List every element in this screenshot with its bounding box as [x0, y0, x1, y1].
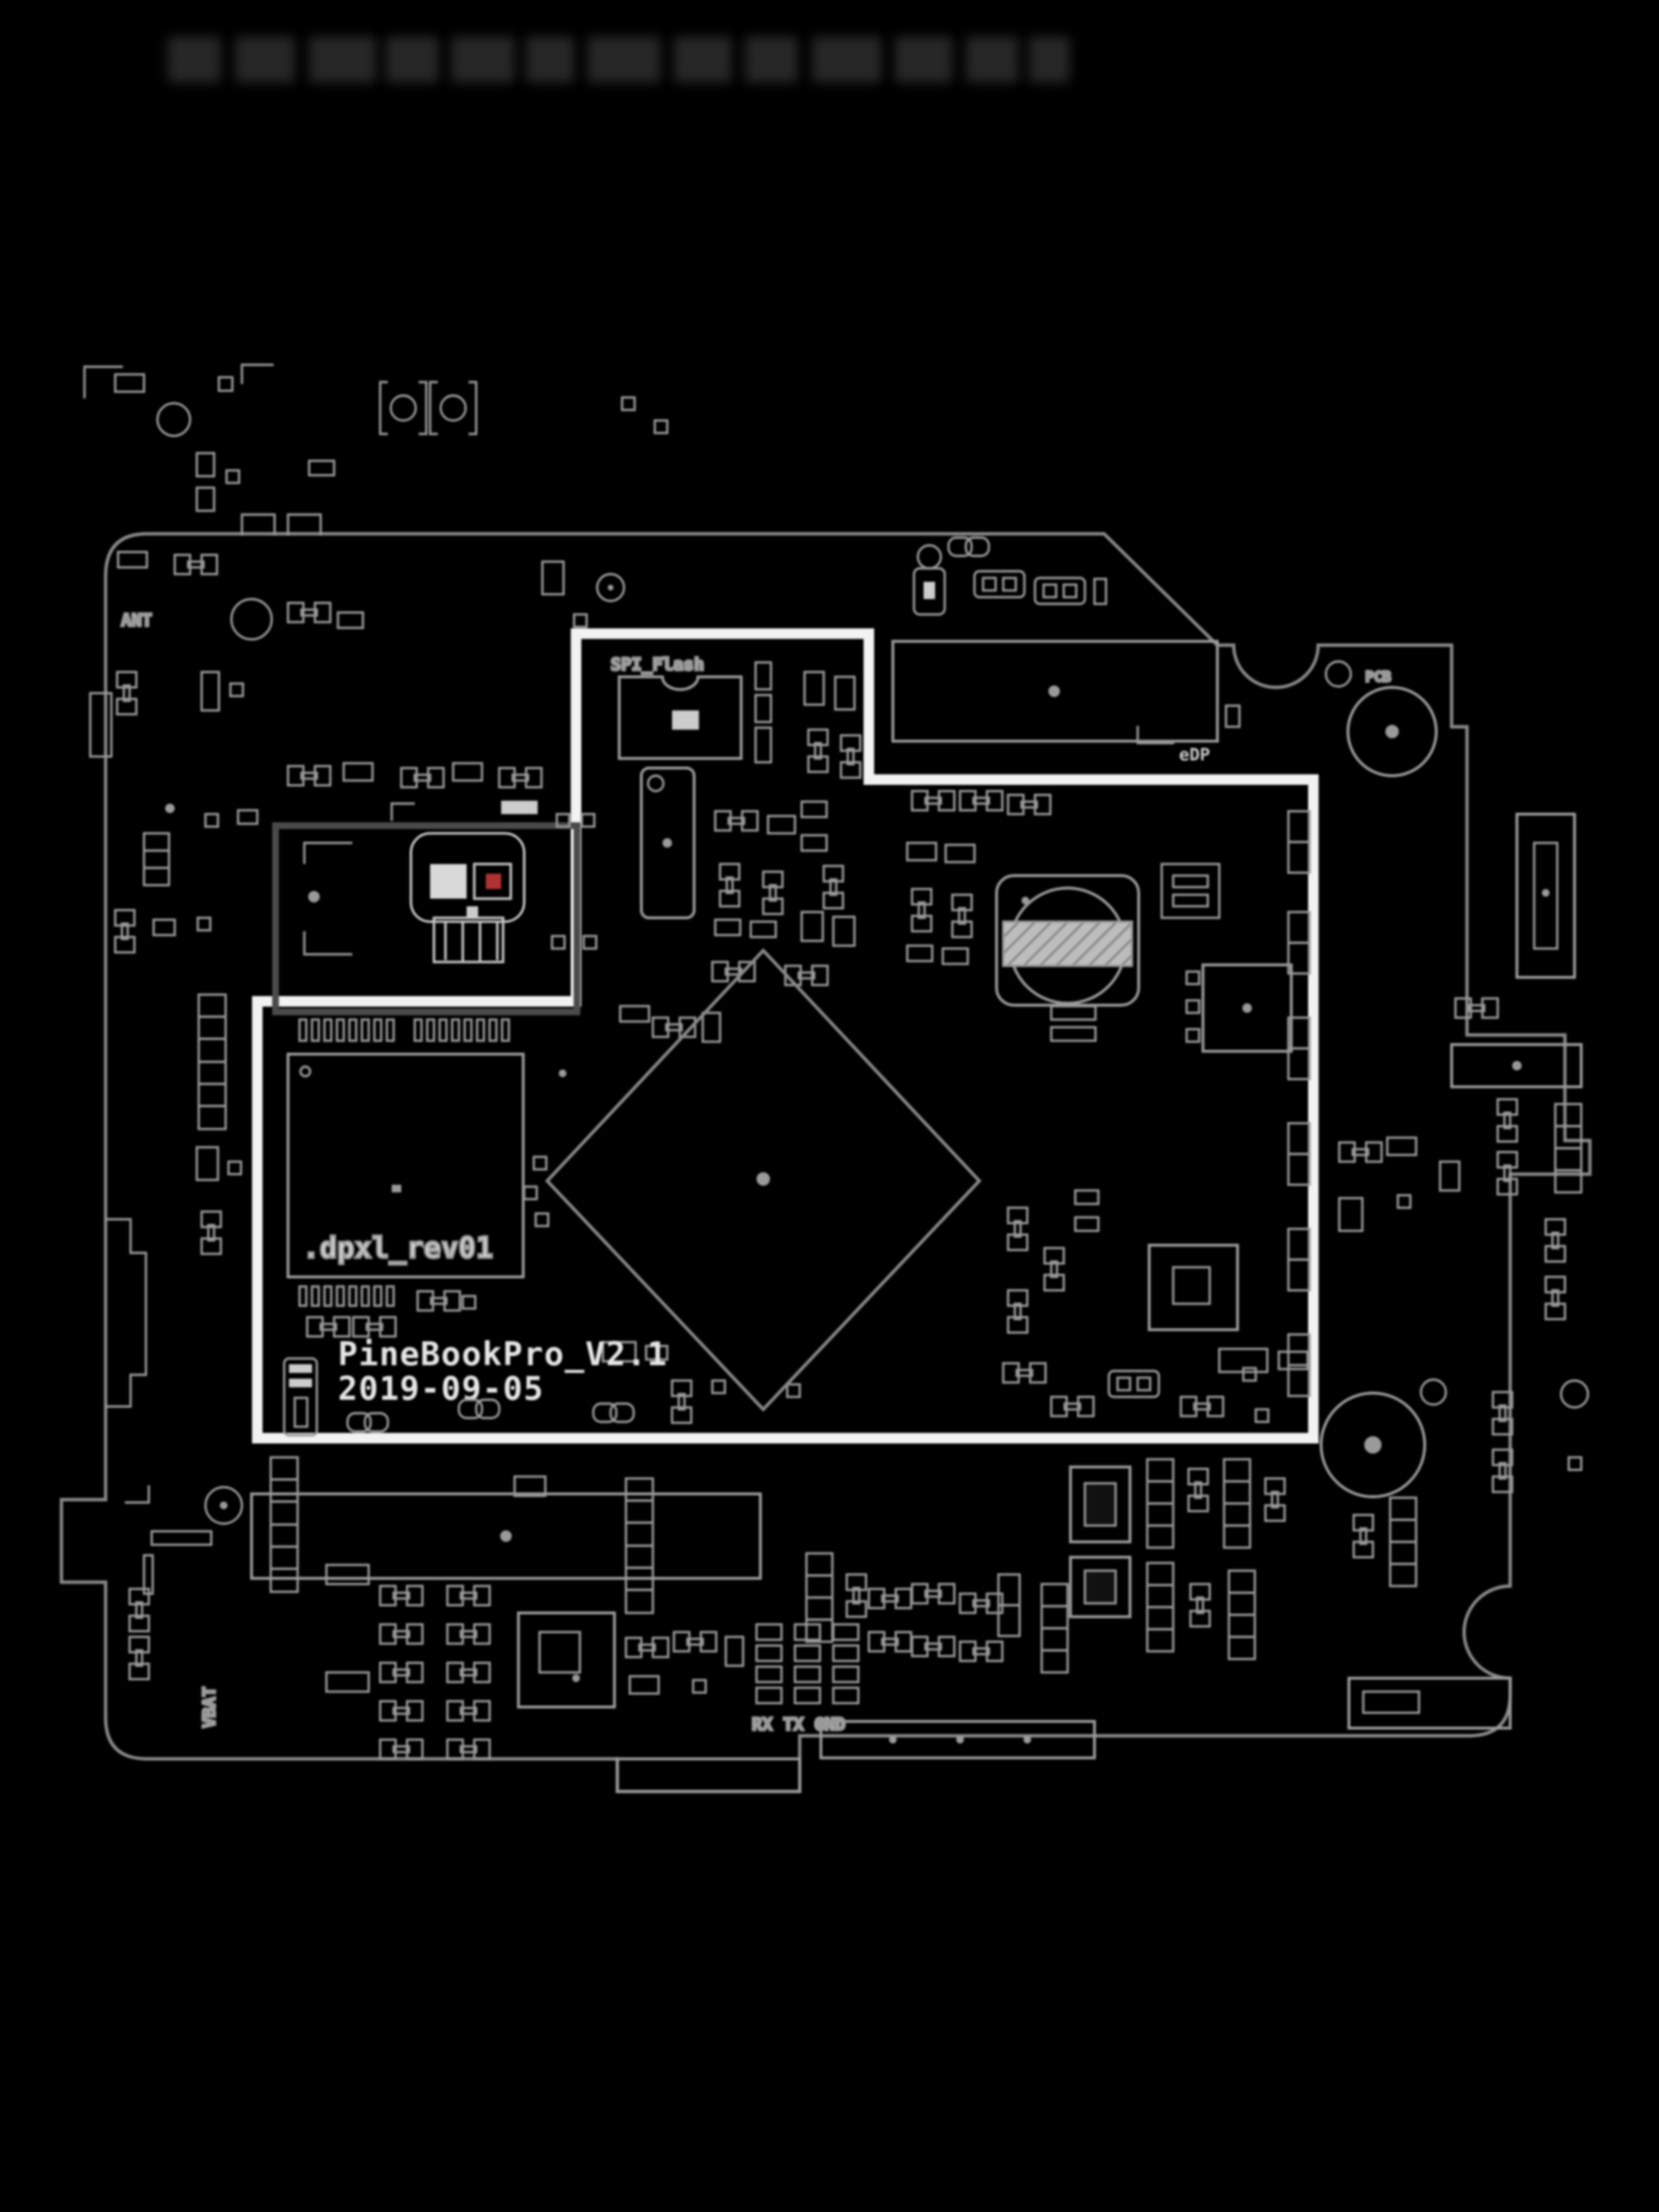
component-cluster-right: PCB — [1321, 661, 1588, 1586]
lock-icon — [914, 545, 945, 614]
silkscreen-title-block: PineBookPro_V2.1 2019-09-05 — [284, 1335, 668, 1435]
screw-bracket-icon — [380, 382, 476, 434]
component-cluster-bottom-right — [1070, 1459, 1510, 1728]
spi-flash-label: SPI_Flash — [611, 655, 705, 675]
component-cluster-bottom-left: VBAT — [125, 1457, 490, 1759]
board-date: 2019-09-05 — [338, 1370, 544, 1408]
emmc-connector — [893, 641, 1239, 741]
mounting-hole-icon — [231, 599, 272, 639]
ram-pads-top — [300, 1020, 509, 1041]
pcb-board-viewer: ANT — [0, 0, 1659, 2212]
protruding-connector — [617, 1759, 800, 1791]
skull-module — [276, 801, 577, 1012]
skull-icon — [411, 833, 524, 962]
pcb-label: PCB — [1365, 668, 1391, 685]
round-component-icon — [997, 876, 1139, 1005]
edp-connector-label: eDP — [1138, 726, 1211, 765]
component-cluster-outside-top-left — [84, 365, 667, 536]
edp-label: eDP — [1179, 745, 1211, 765]
ram-chip: .dpxl_rev01 — [288, 1020, 523, 1336]
battery-label: VBAT — [200, 1686, 220, 1728]
mounting-hole-icon — [1348, 687, 1436, 776]
bottom-chip — [518, 1613, 614, 1707]
spi-flash-chip: SPI_Flash — [611, 655, 771, 918]
bottom-right-connector — [1349, 1678, 1510, 1728]
mounting-hole-icon — [1321, 1393, 1425, 1497]
skull-red-eye-pixel — [486, 874, 501, 889]
board-title: PineBookPro_V2.1 — [338, 1335, 668, 1374]
chip-a — [1203, 965, 1291, 1051]
microphone-icon — [284, 1358, 317, 1435]
component-cluster-left-mid — [115, 804, 257, 1254]
board-outline — [61, 534, 1590, 1791]
ram-pads-bottom — [300, 1286, 475, 1336]
ram-rev-label: .dpxl_rev01 — [302, 1232, 493, 1265]
component-cluster-top-strip: ANT — [90, 538, 1106, 757]
uart-label: RX TX GND — [752, 1715, 846, 1735]
component-cluster-bottom-center: RX TX GND — [252, 1477, 1094, 1791]
bottom-long-connector — [252, 1477, 760, 1578]
slot-component — [1517, 814, 1575, 977]
antenna-label: ANT — [121, 611, 153, 631]
bottom-edge-connector — [821, 1721, 1094, 1758]
chip-b — [1149, 1245, 1238, 1330]
